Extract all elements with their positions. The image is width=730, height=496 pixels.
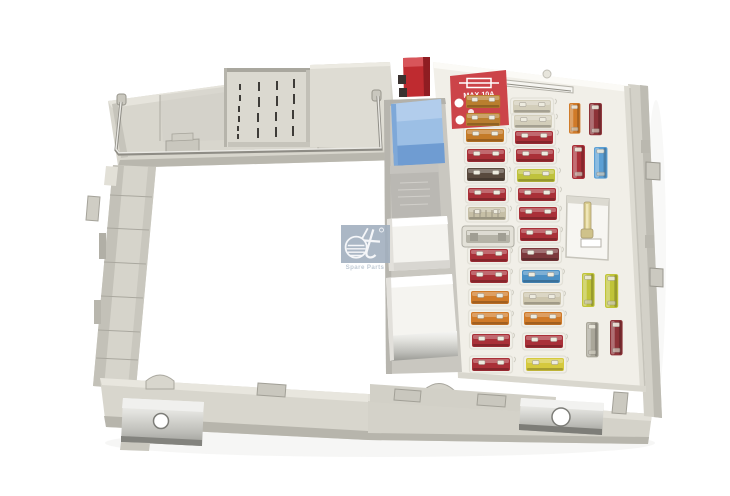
svg-text:Spare Parts: Spare Parts: [346, 264, 385, 271]
